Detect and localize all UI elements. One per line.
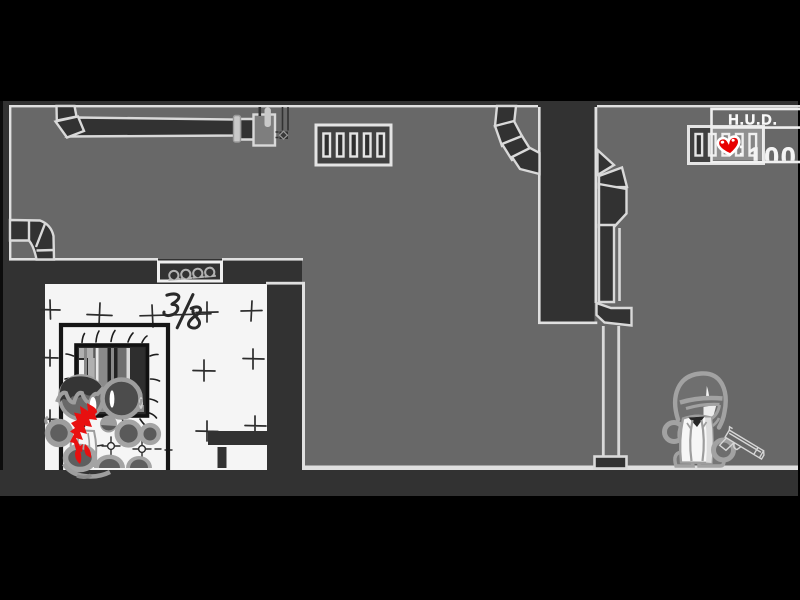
svg-text:H.U.D.: H.U.D. (728, 113, 778, 129)
svg-text::: : (738, 140, 744, 161)
